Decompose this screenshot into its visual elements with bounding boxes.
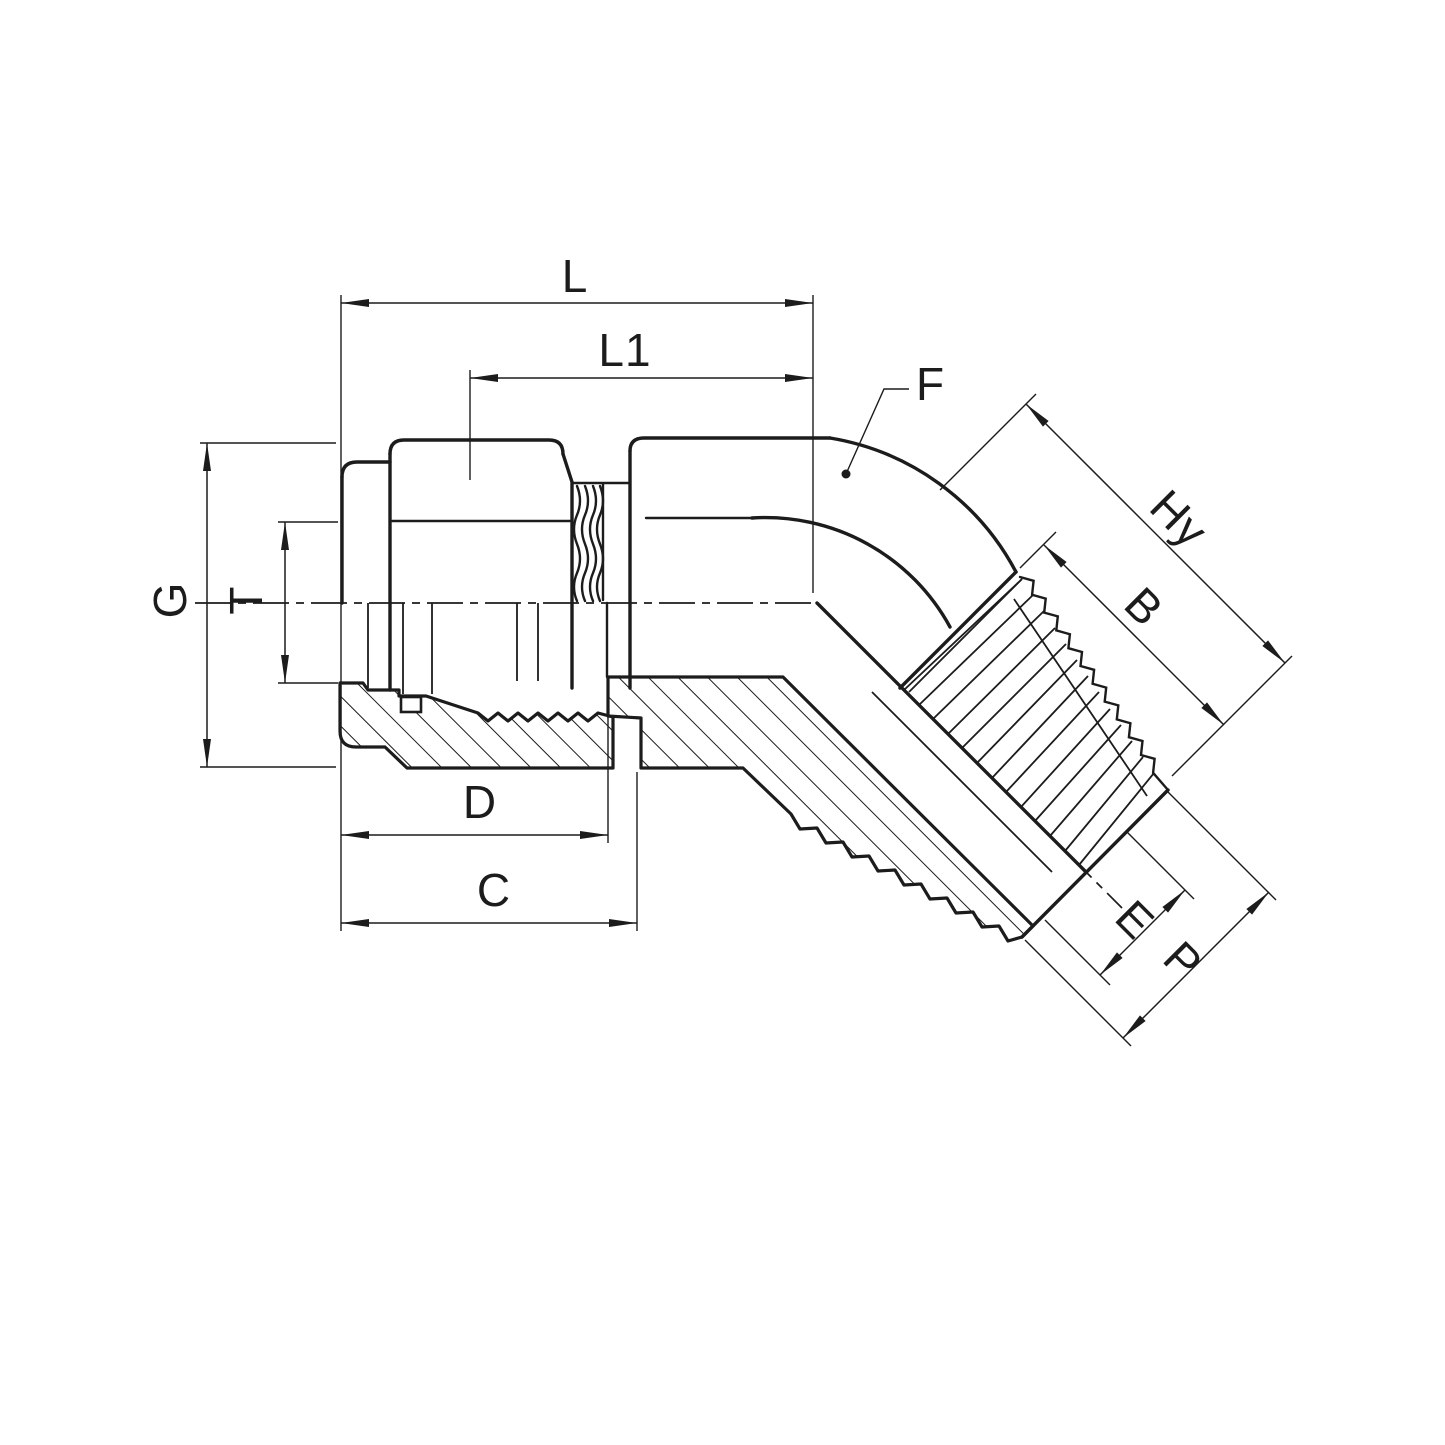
nut-hex-right-face	[563, 454, 572, 688]
dim-label-T: T	[220, 585, 272, 614]
dim-label-L1: L1	[598, 324, 651, 376]
dim-label-F: F	[916, 358, 945, 410]
dim-Hy-extension-near	[940, 394, 1036, 490]
exposed-thread-2	[582, 486, 588, 601]
ferrule-cross-section	[401, 697, 421, 712]
callout-F: F	[842, 358, 946, 479]
body-section	[608, 677, 1033, 941]
technical-drawing-canvas: L L1 G T D C Hy B E	[0, 0, 1445, 1445]
dim-label-G: G	[144, 582, 196, 619]
dim-Hy-extension-far	[1172, 656, 1292, 776]
dimension-B: B	[1020, 532, 1224, 725]
nut-section	[340, 683, 613, 768]
dim-E-extension-upper	[1126, 831, 1194, 899]
exposed-thread-1	[574, 486, 580, 601]
dim-label-Hy: Hy	[1140, 480, 1218, 558]
dim-B-extension-near	[1020, 532, 1056, 568]
branch-hex-end-face	[900, 572, 1016, 688]
exposed-thread-3	[590, 486, 596, 601]
body-hex-top-face	[630, 438, 830, 451]
dimension-L1: L1	[470, 324, 813, 480]
fitting-diagram: L L1 G T D C Hy B E	[0, 0, 1445, 1445]
bend-outer-arc	[830, 438, 1016, 572]
nut-collar-top	[342, 462, 390, 477]
dim-label-B: B	[1115, 577, 1174, 636]
dim-P-extension-lower	[1025, 940, 1131, 1046]
dim-label-D: D	[463, 776, 497, 828]
dim-Hy-line	[1026, 404, 1285, 663]
bore-far-side-edges	[368, 603, 538, 694]
nut-hex-top-face	[390, 440, 563, 454]
dim-label-E: E	[1106, 890, 1165, 949]
dim-label-P: P	[1154, 931, 1213, 990]
bend-inner-arc	[752, 518, 950, 627]
dim-P-extension-upper	[1168, 792, 1276, 900]
dim-label-C: C	[477, 864, 511, 916]
dim-label-L: L	[562, 250, 589, 302]
